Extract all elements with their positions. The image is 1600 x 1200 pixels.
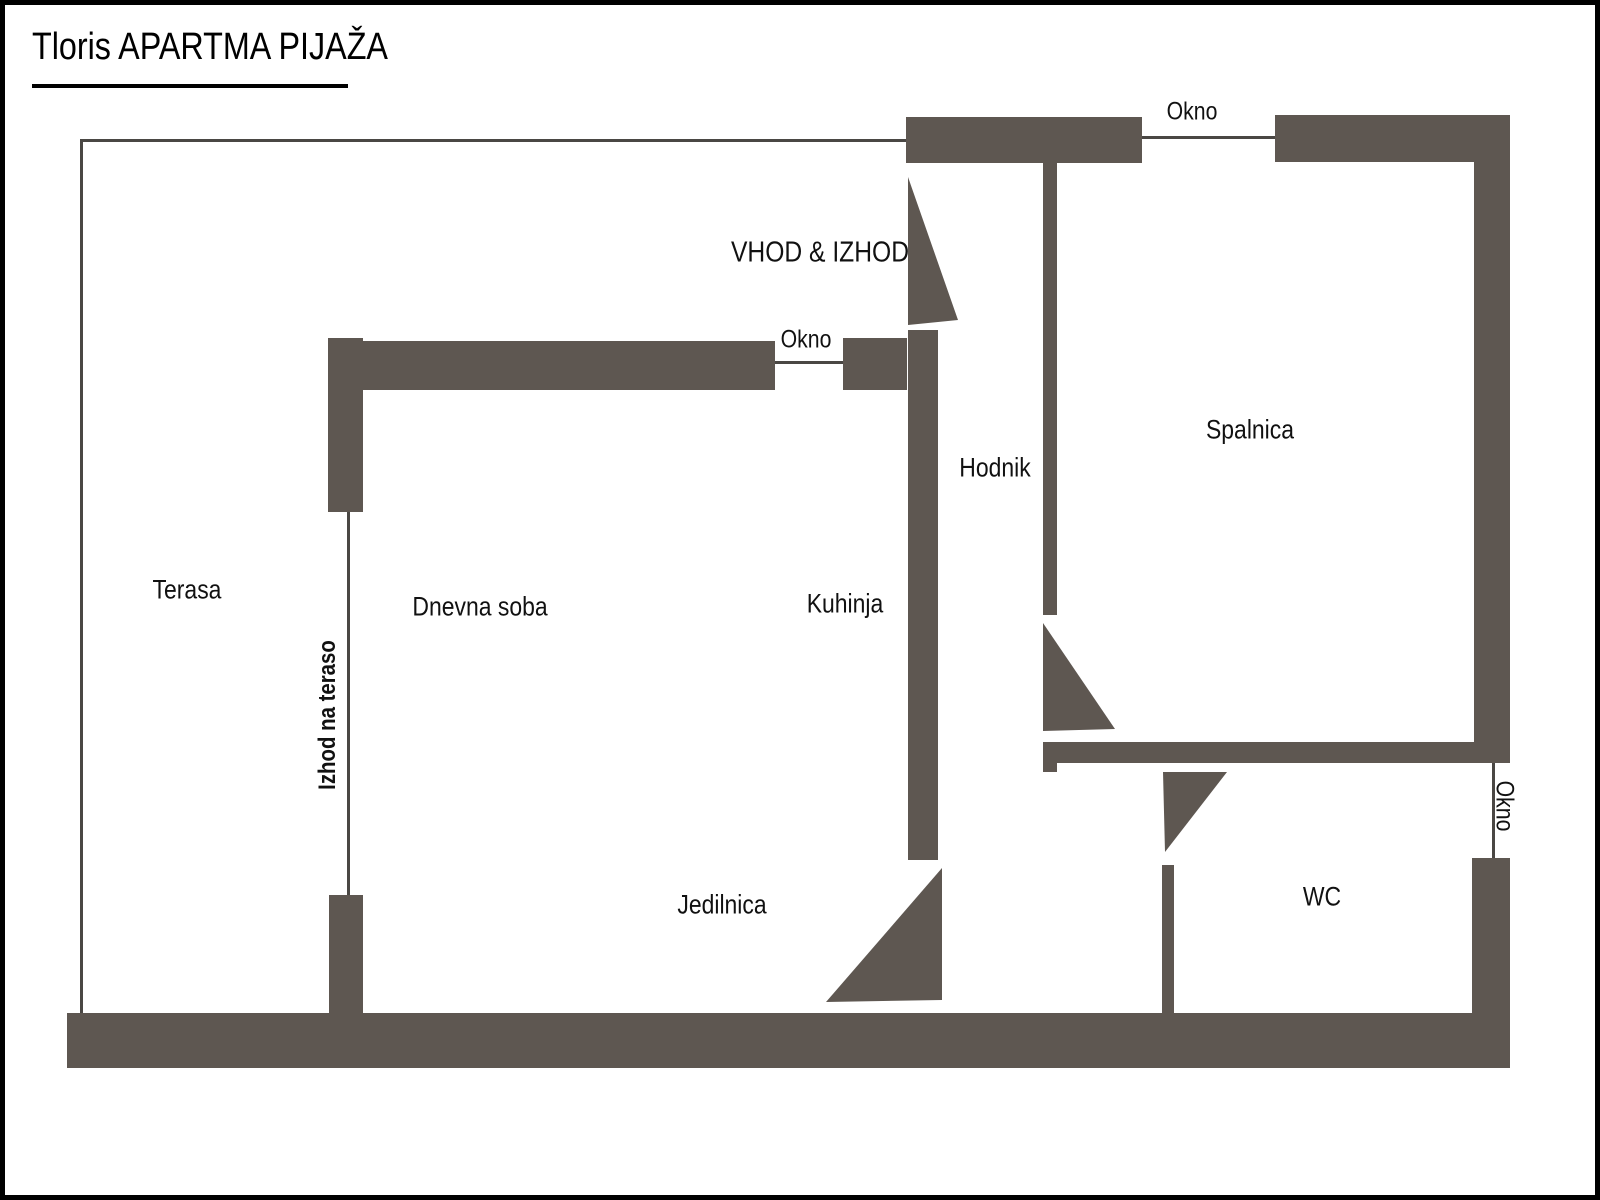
wall-kitchen-top [843, 338, 907, 390]
label-dnevna-soba: Dnevna soba [412, 592, 547, 623]
wall-wc-left [1162, 865, 1174, 1015]
label-entrance: VHOD & IZHOD [731, 237, 909, 270]
wall-entry-top [906, 117, 1142, 163]
wall-bedroom-top [1275, 115, 1510, 162]
label-window-wc: Okno [1490, 781, 1519, 832]
label-wc: WC [1303, 882, 1341, 913]
wall-wc-right [1472, 858, 1510, 1015]
label-spalnica: Spalnica [1206, 415, 1294, 446]
wall-bedroom-bottom [1043, 742, 1510, 763]
wall-bedroom-bottom-cap [1043, 742, 1057, 772]
label-terasa: Terasa [153, 575, 222, 606]
label-kuhinja: Kuhinja [807, 589, 884, 620]
wall-bottom [67, 1013, 1510, 1068]
title-underline [32, 84, 348, 88]
window-line-kitchen [775, 361, 843, 364]
door-swing-wc [1163, 772, 1227, 852]
wall-livingroom-top [328, 341, 775, 390]
door-swing-diningroom [826, 868, 942, 1002]
terrace-door-line [347, 512, 350, 895]
floor-plan: Tloris APARTMA PIJAŽA Terasa Dnevna soba… [0, 0, 1600, 1200]
terrace-left-line [80, 139, 83, 1015]
terrace-top-line [80, 139, 906, 142]
wall-kitchen-right [908, 330, 938, 860]
wall-livingroom-left-upper [328, 338, 363, 512]
wall-livingroom-left-lower [329, 895, 363, 1015]
label-window-bedroom: Okno [1167, 98, 1218, 127]
window-line-bedroom [1142, 136, 1275, 139]
door-swing-entrance [908, 177, 958, 325]
label-window-kitchen: Okno [781, 326, 832, 355]
label-terrace-exit: Izhod na teraso [314, 640, 342, 790]
door-swing-bedroom [1043, 623, 1115, 731]
wall-hallway-bedroom-divider [1043, 160, 1057, 615]
label-hodnik: Hodnik [959, 453, 1030, 484]
label-jedilnica: Jedilnica [677, 890, 766, 921]
wall-bedroom-right [1474, 160, 1510, 762]
plan-title: Tloris APARTMA PIJAŽA [32, 26, 388, 69]
